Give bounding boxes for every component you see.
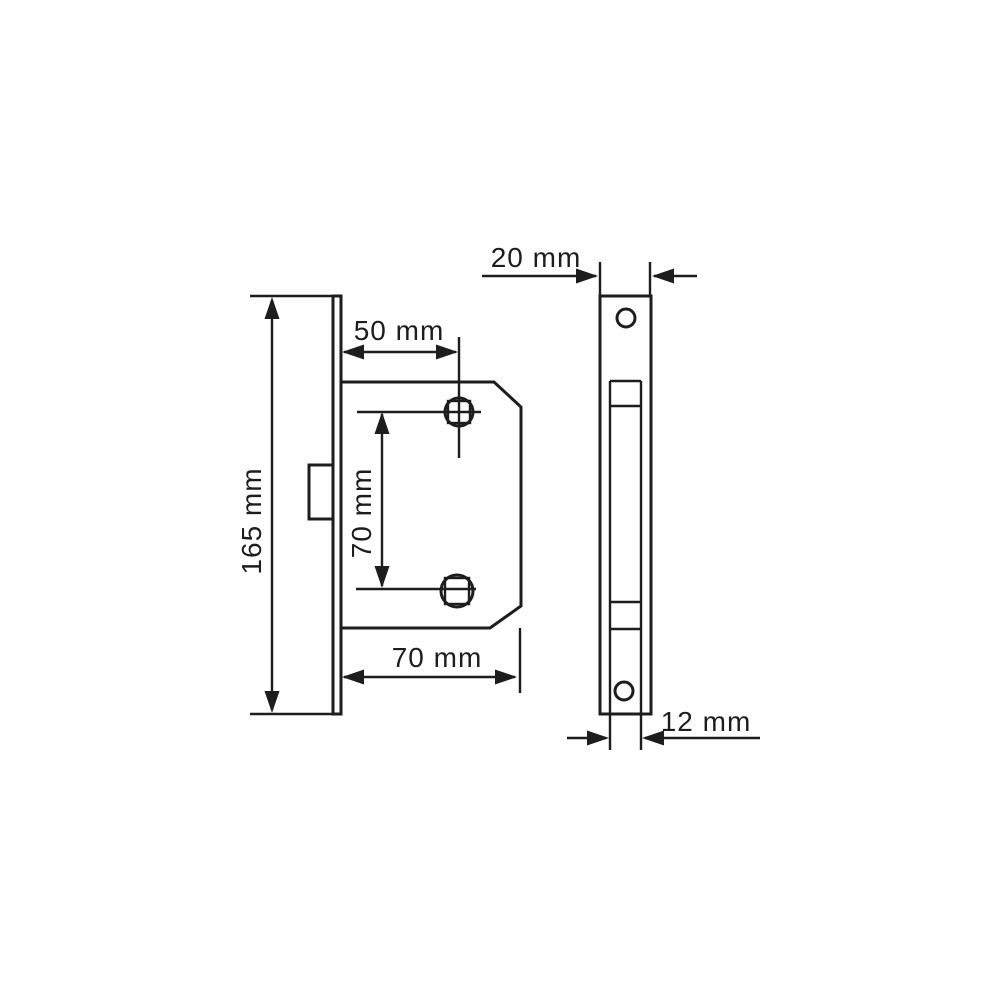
- spindle-hole-bottom-square: [445, 578, 469, 604]
- dimension-plate-width: 20 mm: [482, 242, 697, 296]
- arrowhead-left-icon: [342, 670, 364, 685]
- arrowhead-left-icon: [342, 345, 364, 360]
- spindle-hole-bottom: [356, 575, 476, 607]
- dim-label-spindle-spacing: 70 mm: [346, 468, 377, 559]
- dimension-backset: 50 mm: [342, 315, 458, 360]
- dim-label-plate-height: 165 mm: [236, 467, 267, 574]
- arrowhead-right-icon: [495, 670, 517, 685]
- dim-label-plate-width: 20 mm: [491, 242, 582, 273]
- dimension-plate-height: 165 mm: [236, 296, 333, 714]
- arrowhead-right-icon: [587, 731, 609, 746]
- dim-label-backset: 50 mm: [354, 315, 445, 346]
- faceplate-front-view: [600, 296, 651, 750]
- screw-hole-bottom: [615, 682, 633, 700]
- screw-hole-top: [617, 309, 635, 327]
- spindle-hole-top: [357, 337, 481, 458]
- dimension-spindle-spacing: 70 mm: [346, 412, 390, 588]
- dim-label-case-thickness: 12 mm: [661, 706, 752, 737]
- faceplate-front: [600, 296, 651, 714]
- lock-dimension-diagram: 165 mm 50 mm 70 mm 70 mm: [0, 0, 1000, 1000]
- arrowhead-down-icon: [265, 691, 280, 713]
- arrowhead-up-icon: [265, 297, 280, 319]
- arrowhead-down-icon: [375, 566, 390, 588]
- latch-bolt: [309, 465, 333, 519]
- arrowhead-left-icon: [652, 269, 674, 284]
- arrowhead-right-icon: [436, 345, 458, 360]
- dimension-case-depth: 70 mm: [342, 628, 520, 693]
- dim-label-case-depth: 70 mm: [392, 642, 483, 673]
- technical-drawing: 165 mm 50 mm 70 mm 70 mm: [0, 0, 1000, 1000]
- dimension-case-thickness: 12 mm: [567, 706, 760, 746]
- arrowhead-up-icon: [375, 412, 390, 434]
